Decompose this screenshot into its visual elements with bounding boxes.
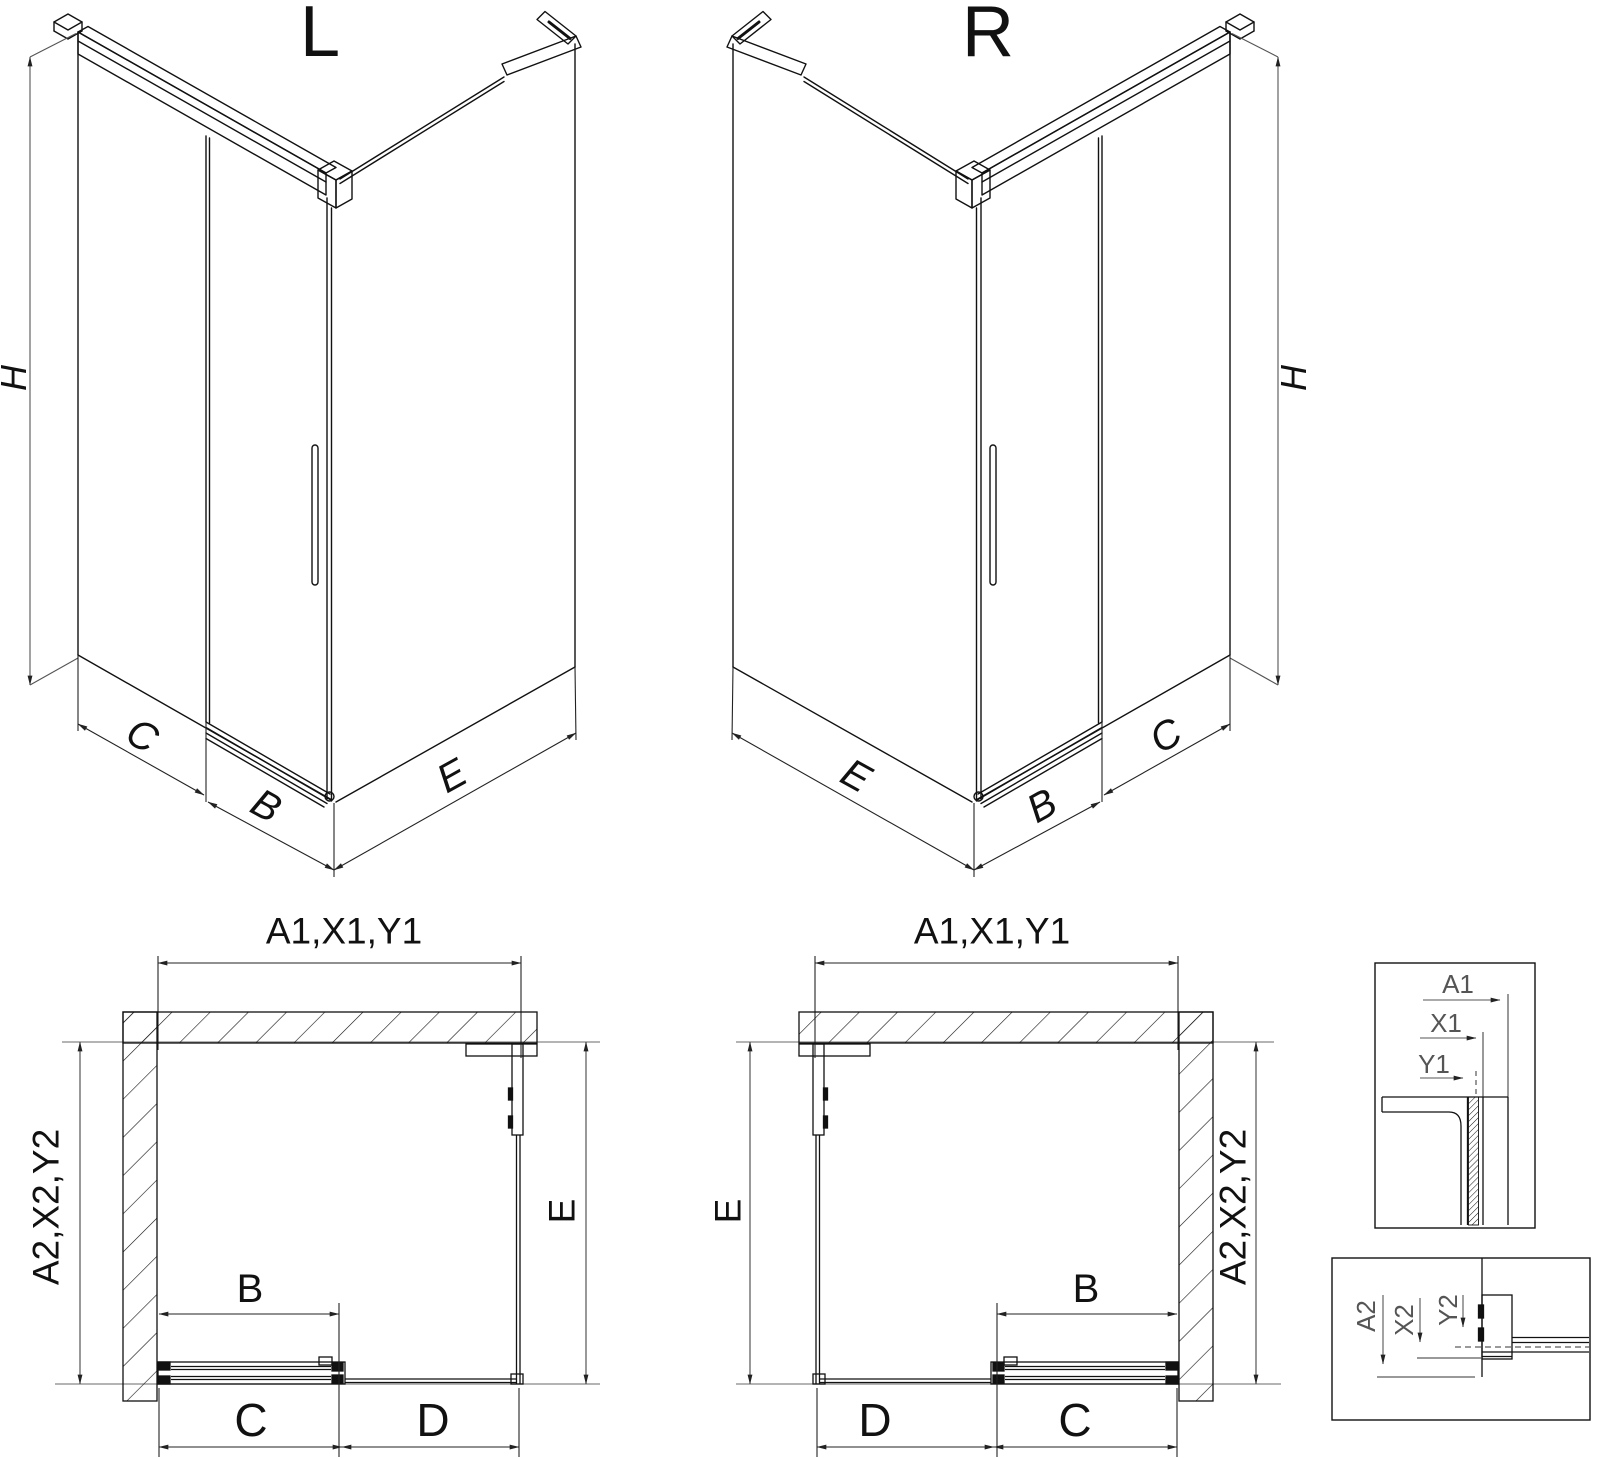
iso-right-view-art (727, 12, 1278, 878)
detail-width-box (1375, 963, 1535, 1228)
wall-hatch-strips (123, 1012, 1213, 1401)
iso-right-title: R (962, 0, 1014, 68)
iso-left-view-art (30, 12, 581, 878)
detail-depth-inner-label: X2 (1391, 1304, 1417, 1336)
plan-left-door-label: B (237, 1269, 264, 1309)
plan-left-opening-label: D (416, 1397, 449, 1443)
technical-drawing-page: L H C B E R H E B C A1,X1,Y1 A2,X2,Y2 E … (0, 0, 1600, 1458)
detail-width-glass-label: Y1 (1418, 1051, 1450, 1077)
detail-width-inner-label: X1 (1430, 1010, 1462, 1036)
plan-right-opening-label: D (858, 1397, 891, 1443)
detail-depth-overall-label: A2 (1353, 1300, 1379, 1332)
plan-left-fixed-label: C (234, 1397, 267, 1443)
iso-left-height-label: H (0, 365, 32, 391)
plan-left-width-label: A1,X1,Y1 (266, 913, 422, 950)
plan-right-door-label: B (1073, 1269, 1100, 1309)
plan-right-fixed-label: C (1058, 1397, 1091, 1443)
plan-left-panel-label: E (544, 1199, 581, 1224)
iso-left-title: L (300, 0, 340, 68)
detail-depth-glass-label: Y2 (1435, 1294, 1461, 1326)
plan-right-width-label: A1,X1,Y1 (914, 913, 1070, 950)
iso-right-height-label: H (1276, 365, 1312, 391)
detail-width-overall-label: A1 (1442, 971, 1474, 997)
drawing-canvas (0, 0, 1600, 1458)
plan-left-depth-label: A2,X2,Y2 (28, 1129, 65, 1285)
plan-right-depth-label: A2,X2,Y2 (1215, 1129, 1252, 1285)
detail-depth-box (1332, 1258, 1590, 1420)
plan-right-panel-label: E (710, 1199, 747, 1224)
